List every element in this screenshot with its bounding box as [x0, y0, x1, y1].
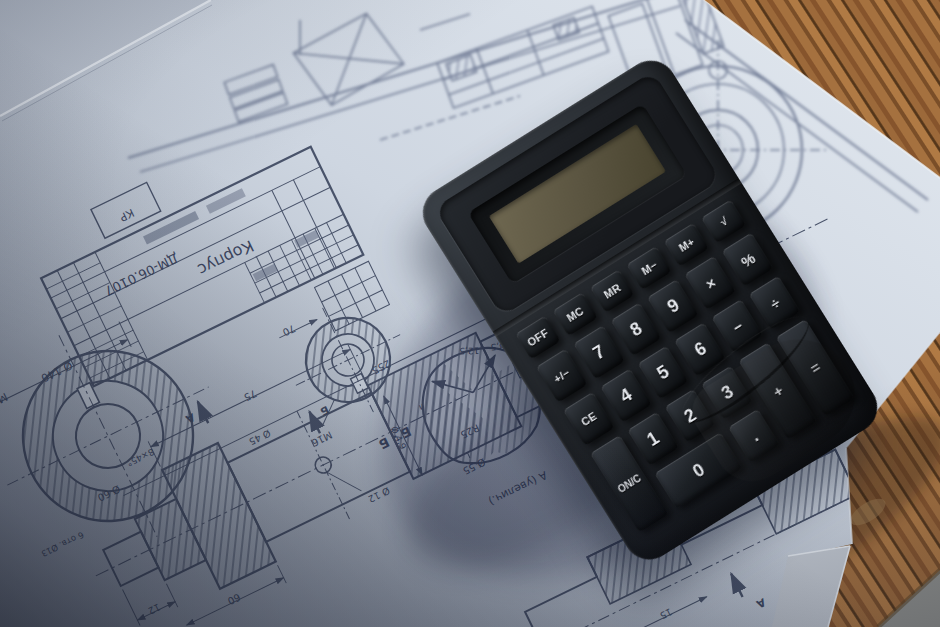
key-mc[interactable]: MC [552, 292, 597, 336]
key-7[interactable]: 7 [573, 325, 625, 379]
key-mr[interactable]: MR [590, 269, 635, 313]
key-5[interactable]: 5 [637, 345, 689, 399]
key-off[interactable]: OFF [515, 316, 560, 360]
key-9[interactable]: 9 [647, 279, 699, 333]
key-ce[interactable]: CE [563, 392, 615, 446]
key-sqrt[interactable]: √ [701, 199, 746, 243]
photo-scene: Корпус ДМ-06.0107 КР Ø 140 [0, 0, 940, 627]
key-4[interactable]: 4 [600, 369, 652, 423]
key-percent[interactable]: % [722, 233, 774, 287]
key-m-plus[interactable]: M+ [664, 223, 709, 267]
key-8[interactable]: 8 [610, 302, 662, 356]
key-multiply[interactable]: × [685, 256, 737, 310]
key-plus-minus[interactable]: +/− [536, 349, 588, 403]
key-m-minus[interactable]: M− [627, 246, 672, 290]
key-1[interactable]: 1 [627, 412, 679, 466]
